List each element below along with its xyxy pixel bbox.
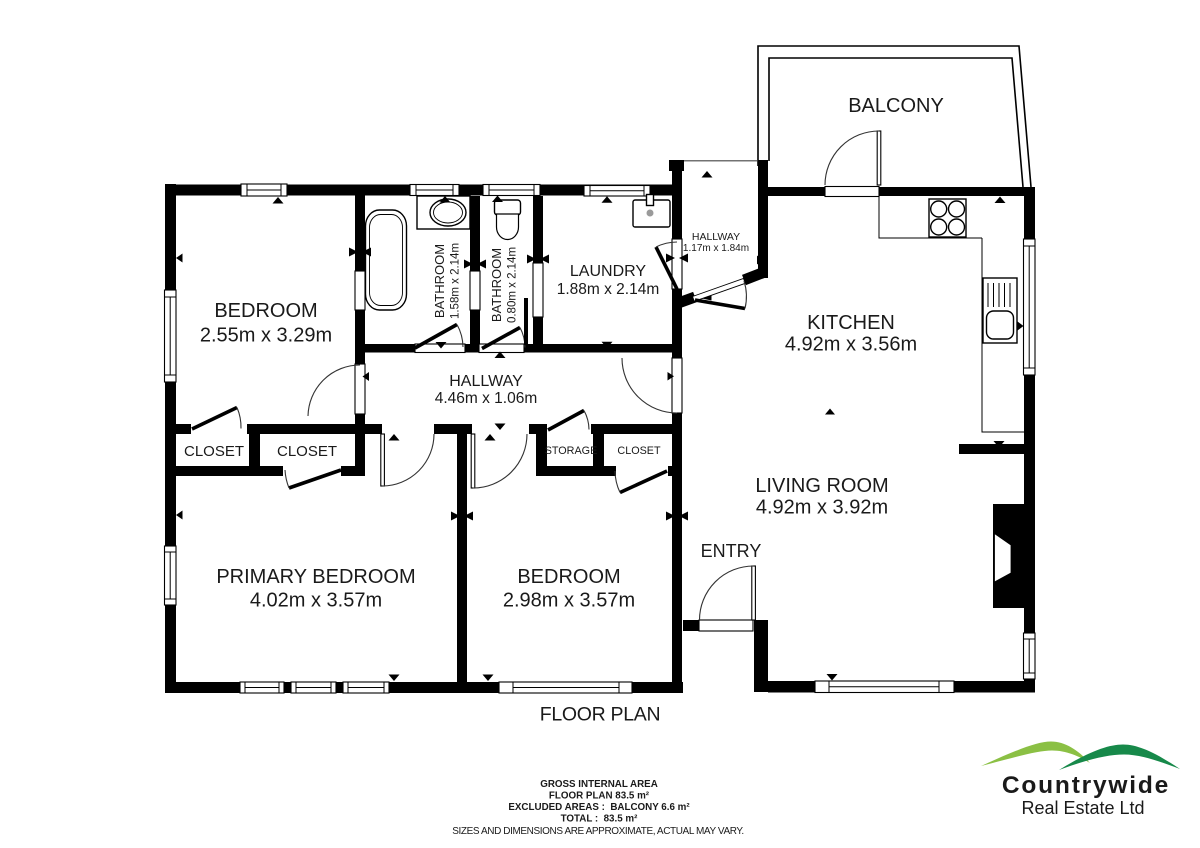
- svg-text:0.80m x 2.14m: 0.80m x 2.14m: [507, 247, 519, 323]
- svg-text:4.92m x 3.92m: 4.92m x 3.92m: [756, 497, 888, 519]
- svg-text:BATHROOM: BATHROOM: [489, 248, 504, 322]
- svg-text:BALCONY: BALCONY: [848, 95, 944, 117]
- svg-text:LAUNDRY: LAUNDRY: [570, 263, 647, 280]
- svg-text:CLOSET: CLOSET: [184, 443, 244, 460]
- svg-text:2.55m x 3.29m: 2.55m x 3.29m: [200, 325, 332, 347]
- svg-text:CLOSET: CLOSET: [617, 445, 661, 457]
- svg-text:PRIMARY BEDROOM: PRIMARY BEDROOM: [216, 566, 415, 588]
- svg-text:BEDROOM: BEDROOM: [214, 300, 317, 322]
- svg-text:1.88m x 2.14m: 1.88m x 2.14m: [557, 281, 660, 298]
- svg-text:BATHROOM: BATHROOM: [432, 244, 447, 318]
- svg-text:1.58m x 2.14m: 1.58m x 2.14m: [450, 243, 462, 319]
- svg-text:HALLWAY: HALLWAY: [449, 373, 523, 390]
- svg-text:TOTAL : 83.5 m²: TOTAL : 83.5 m²: [561, 814, 638, 825]
- svg-text:FLOOR PLAN: FLOOR PLAN: [540, 704, 661, 726]
- svg-text:1.17m x 1.84m: 1.17m x 1.84m: [683, 243, 749, 254]
- svg-text:ENTRY: ENTRY: [701, 541, 762, 561]
- svg-text:EXCLUDED AREAS : BALCONY 6.6: EXCLUDED AREAS : BALCONY 6.6 m²: [508, 802, 690, 813]
- svg-text:Countrywide: Countrywide: [1002, 772, 1170, 799]
- svg-text:4.02m x 3.57m: 4.02m x 3.57m: [250, 590, 382, 612]
- svg-text:FLOOR PLAN 83.5 m²: FLOOR PLAN 83.5 m²: [549, 791, 650, 802]
- svg-text:STORAGE: STORAGE: [545, 445, 598, 457]
- svg-text:4.92m x 3.56m: 4.92m x 3.56m: [785, 334, 917, 356]
- svg-text:KITCHEN: KITCHEN: [807, 312, 895, 334]
- svg-text:Real Estate Ltd: Real Estate Ltd: [1021, 798, 1144, 818]
- svg-text:SIZES AND DIMENSIONS ARE APPRO: SIZES AND DIMENSIONS ARE APPROXIMATE, AC…: [452, 826, 743, 837]
- svg-text:CLOSET: CLOSET: [277, 443, 337, 460]
- svg-text:LIVING ROOM: LIVING ROOM: [755, 475, 888, 497]
- svg-text:4.46m x 1.06m: 4.46m x 1.06m: [435, 390, 538, 407]
- svg-text:BEDROOM: BEDROOM: [517, 566, 620, 588]
- svg-text:2.98m x 3.57m: 2.98m x 3.57m: [503, 590, 635, 612]
- svg-text:GROSS INTERNAL AREA: GROSS INTERNAL AREA: [540, 779, 658, 790]
- svg-text:HALLWAY: HALLWAY: [692, 231, 740, 243]
